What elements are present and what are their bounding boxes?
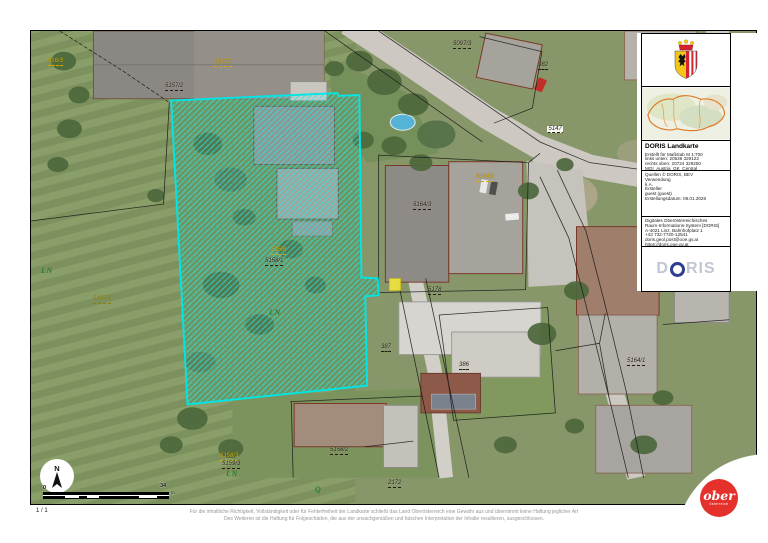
scale-bar-graphic [43, 492, 169, 499]
scale-start-label: 0 [43, 485, 46, 491]
panel-source-block: Quellen © DORIS, BEVVerwendungk.A.Erstel… [645, 173, 727, 202]
ober-logo-script: ober [703, 490, 735, 501]
panel-title: DORIS Landkarte [645, 143, 727, 150]
doris-logo: D RIS [642, 247, 730, 291]
panel-source-box: Quellen © DORIS, BEVVerwendungk.A.Erstel… [642, 171, 730, 217]
ober-logo-subtext: österreich [710, 502, 729, 506]
disclaimer-line-1: Für die inhaltliche Richtigkeit, Vollstä… [0, 509, 768, 515]
scale-unit-label: m [171, 490, 175, 495]
info-panel: DORIS Landkarte Erstellt für Maßstab M 1… [637, 33, 757, 291]
panel-contact-box: Digitales OberösterreichischesRaum-Infor… [642, 217, 730, 247]
panel-contact-block: Digitales OberösterreichischesRaum-Infor… [645, 219, 727, 247]
scale-bar: 0 34 m [43, 484, 177, 505]
doris-logo-d: D [656, 260, 669, 278]
doris-logo-ring [670, 262, 685, 277]
yellow-marker [389, 278, 401, 290]
disclaimer-line-2: Des Weiteren ist die Haftung für Folgesc… [0, 516, 768, 522]
swimming-pool [390, 114, 415, 130]
panel-meta-block: Erstellt für Maßstab M 1:700links unten:… [645, 153, 727, 172]
doris-logo-box: D RIS [642, 247, 730, 291]
panel-title-box: DORIS Landkarte Erstellt für Maßstab M 1… [642, 141, 730, 171]
ober-oesterreich-logo: ober österreich [700, 479, 738, 517]
doris-logo-ris: RIS [686, 260, 716, 278]
overview-map [642, 87, 730, 141]
panel-text-line: Erstellungsdatum: 08.01.2026 [645, 197, 727, 202]
north-label: N [54, 464, 59, 473]
doris-map-export-page: 916/31157/25157/25097/338251475164/25164… [0, 0, 768, 543]
highlighted-parcel[interactable] [171, 93, 378, 404]
coat-of-arms [642, 34, 730, 87]
scale-end-label: 34 [160, 483, 166, 489]
